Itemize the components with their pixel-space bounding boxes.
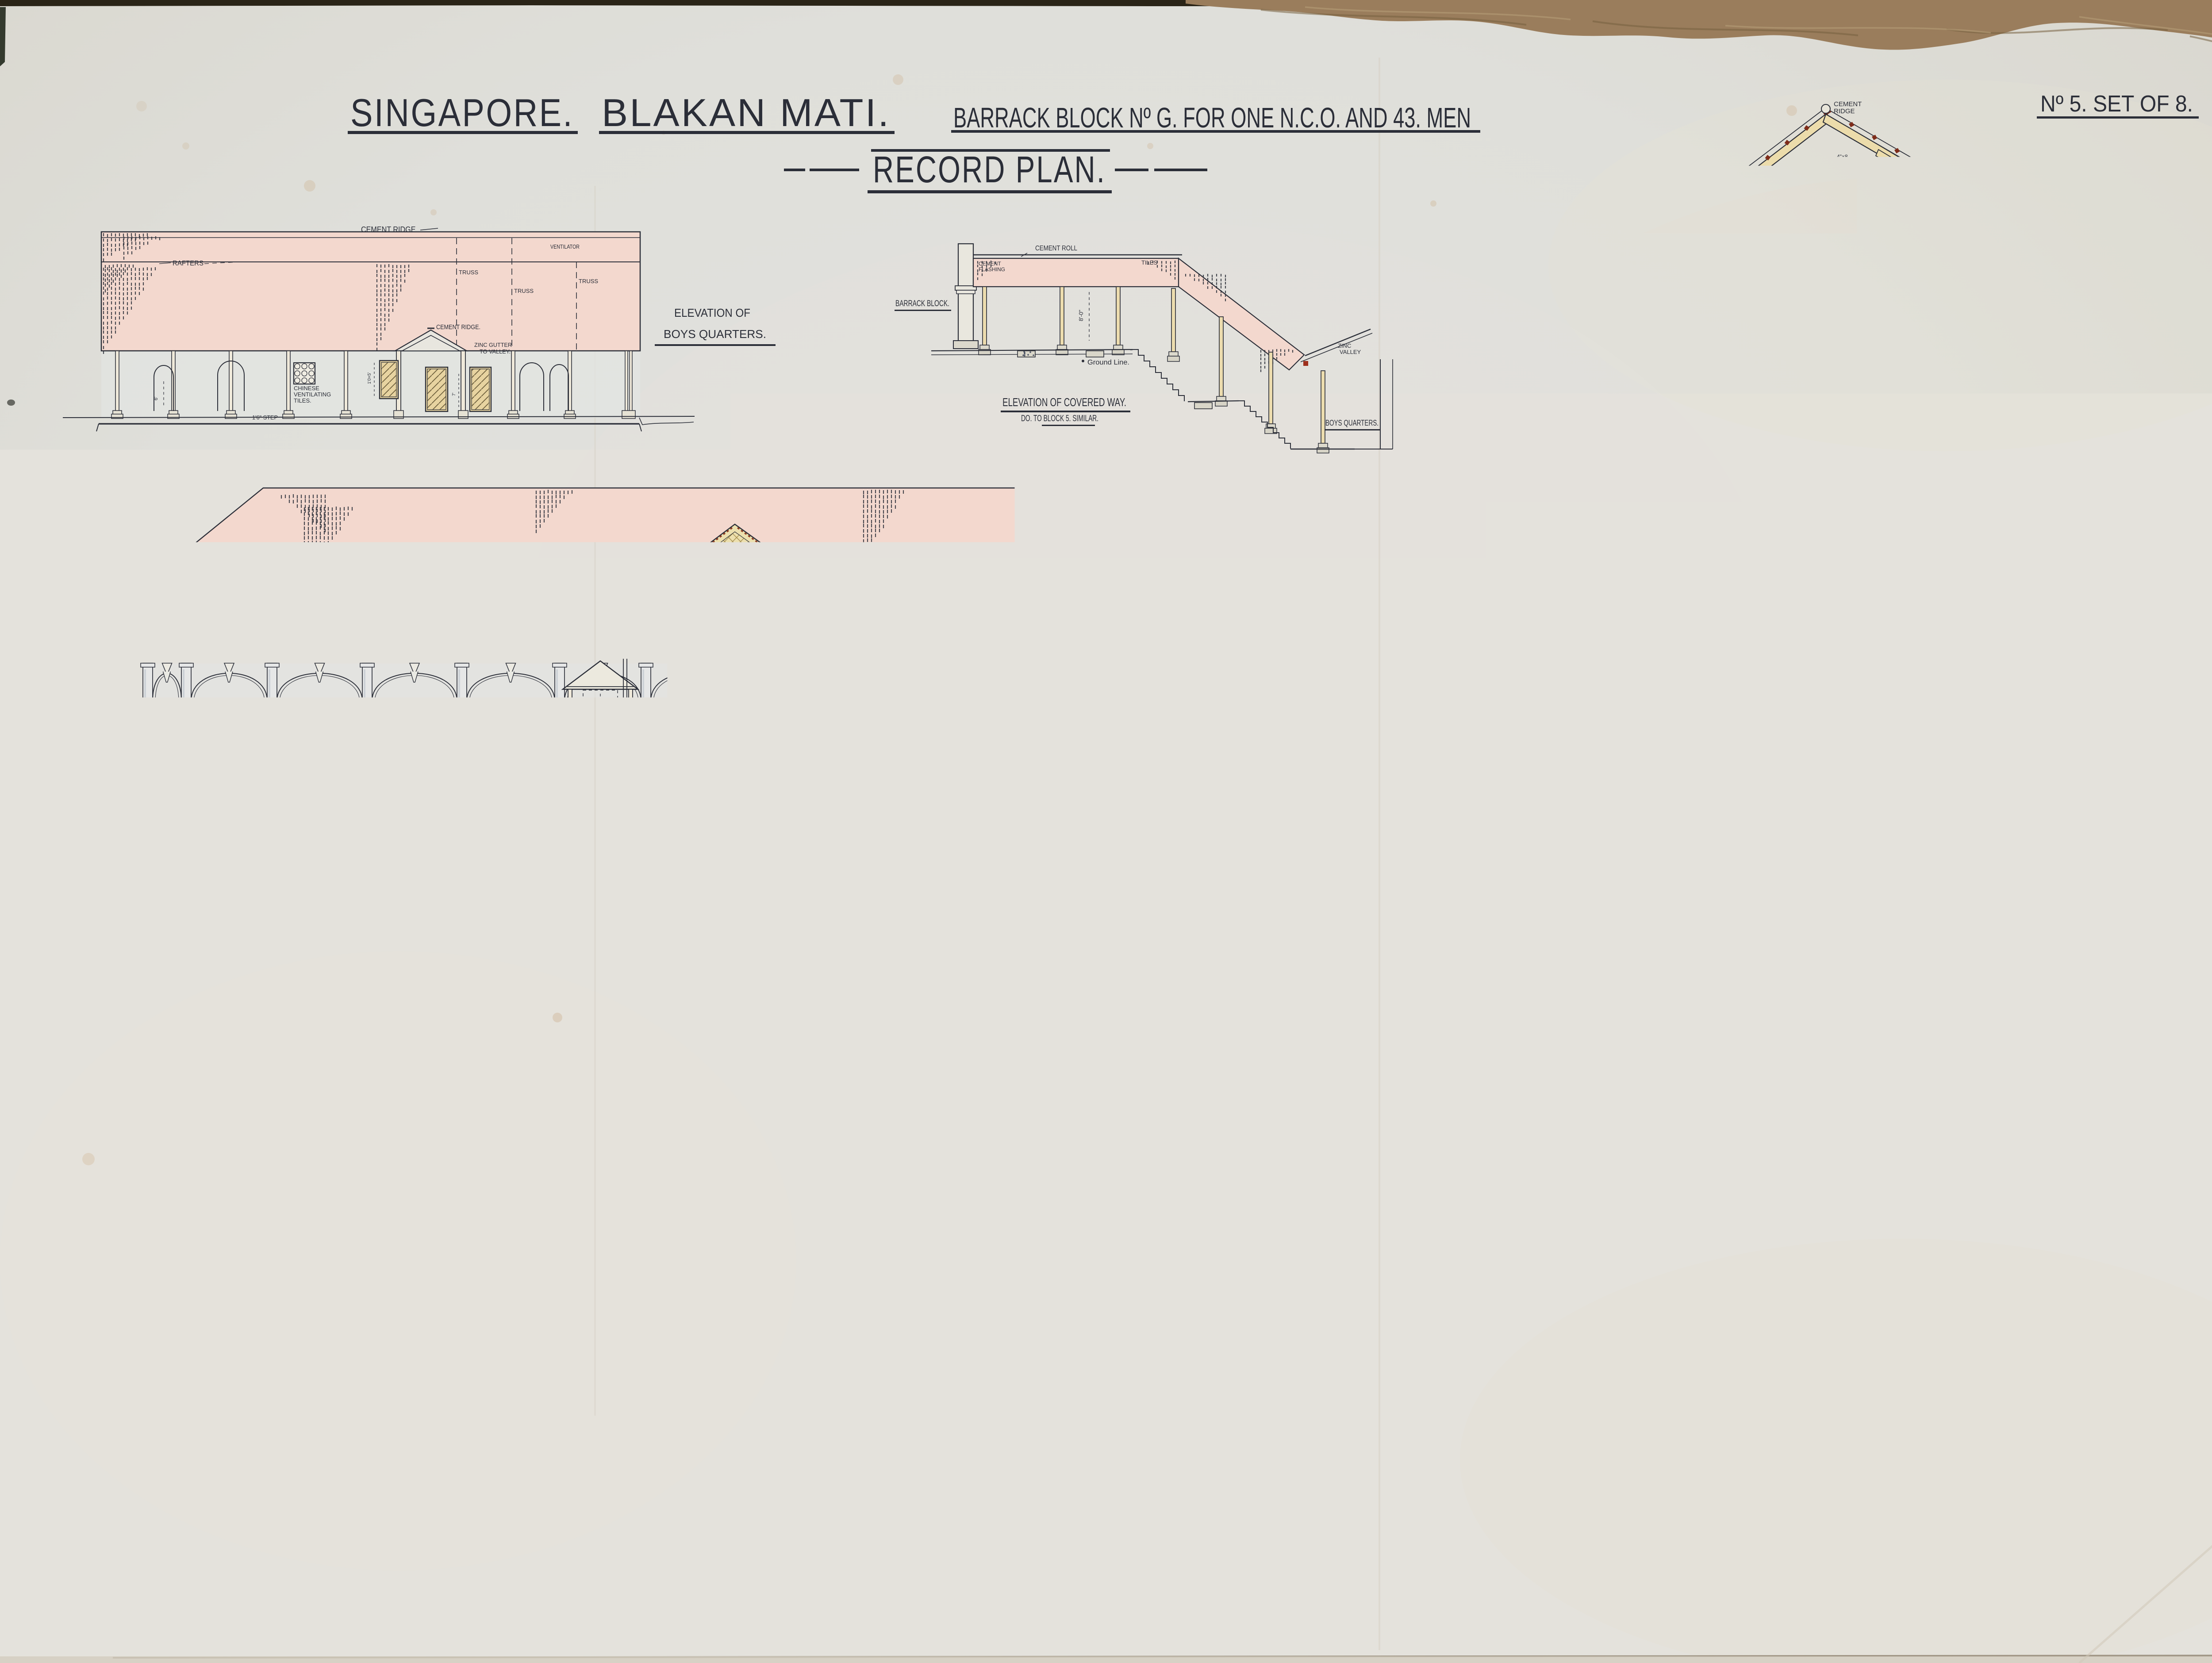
svg-text:20.: 20. (950, 1564, 962, 1574)
svg-text:6"×6": 6"×6" (1168, 331, 1181, 338)
svg-text:ELEVATION OF: ELEVATION OF (674, 306, 750, 319)
svg-text:RIDGE: RIDGE (1834, 108, 1855, 115)
svg-text:6: 6 (1503, 1322, 1506, 1329)
svg-text:12 Ins: 12 Ins (688, 1580, 708, 1587)
svg-text:4"×3" UPRIGHT.: 4"×3" UPRIGHT. (1793, 192, 1833, 199)
svg-text:5: 5 (754, 1561, 760, 1572)
svg-text:CORBEL.: CORBEL. (1616, 1014, 1639, 1020)
svg-text:ELEVATION OF COVERED WAY.: ELEVATION OF COVERED WAY. (1002, 396, 1126, 409)
svg-text:5"×8": 5"×8" (1594, 326, 1608, 332)
svg-text:10: 10 (717, 1563, 725, 1571)
svg-text:6" HARD FILLING.: 6" HARD FILLING. (1916, 1181, 1973, 1188)
svg-text:0: 0 (1659, 1306, 1664, 1315)
svg-text:LINE OF: LINE OF (1949, 758, 1971, 764)
svg-text:10×6: 10×6 (1647, 1010, 1659, 1016)
svg-text:LEVEL OF FLOOR. 58·69.: LEVEL OF FLOOR. 58·69. (1745, 463, 1820, 470)
svg-text:TRUSS: TRUSS (514, 288, 534, 294)
svg-text:°: ° (1509, 1319, 1512, 1326)
svg-text:WOOD POST.: WOOD POST. (1573, 418, 1610, 424)
svg-text:4½"×4½": 4½"×4½" (1573, 411, 1597, 418)
svg-text:STRAITS SETTLEMENTS.: STRAITS SETTLEMENTS. (2133, 1615, 2212, 1629)
svg-text:TRUSS: TRUSS (459, 269, 478, 276)
svg-text:6': 6' (154, 397, 159, 400)
svg-text:FLASHING: FLASHING (979, 266, 1005, 273)
svg-text:CORBEL.: CORBEL. (1813, 1024, 1834, 1029)
svg-text:⟵ 2'-3"⟶: ⟵ 2'-3"⟶ (2056, 1254, 2086, 1260)
svg-text:PURLINS: PURLINS (1953, 233, 1976, 239)
svg-text:CEMENT RIDGE.: CEMENT RIDGE. (436, 323, 480, 331)
svg-text:TILES: TILES (1141, 259, 1157, 266)
svg-text:9" BRICK.: 9" BRICK. (1691, 306, 1717, 313)
svg-text:FRONT ELEVATION (N.E.): FRONT ELEVATION (N.E.) (669, 1333, 826, 1350)
svg-text:VENTILATOR: VENTILATOR (550, 243, 580, 250)
svg-text:6" PORTLAND CEMENT CONCRETE.: 6" PORTLAND CEMENT CONCRETE. (1753, 473, 1859, 480)
svg-text:50.: 50. (1179, 1564, 1191, 1574)
svg-text:ARCH.: ARCH. (2089, 375, 2105, 381)
svg-text:TILES.: TILES. (294, 397, 311, 404)
svg-text:CEMENT: CEMENT (1796, 641, 1826, 649)
svg-text:6" P.C. CONCRETE.: 6" P.C. CONCRETE. (1606, 1169, 1659, 1175)
svg-text:6"×2" JOIST.: 6"×2" JOIST. (1586, 991, 1619, 998)
svg-text:WOOD POST.: WOOD POST. (1125, 311, 1159, 317)
svg-text:CEMENT DAMP COURSE: CEMENT DAMP COURSE (1886, 1144, 1974, 1151)
svg-text:CONCRETE: CONCRETE (1819, 1210, 1851, 1217)
svg-text:CEMENT RIDGE.: CEMENT RIDGE. (361, 225, 418, 234)
svg-text:GRANITE CORBEL.: GRANITE CORBEL. (1664, 1026, 1709, 1032)
svg-text:BRCK.: BRCK. (1520, 1031, 1535, 1037)
svg-text:SILT PIT.: SILT PIT. (995, 1318, 1018, 1325)
svg-text:CEMENTED: CEMENTED (1001, 351, 1028, 356)
svg-text:9": 9" (1677, 307, 1682, 314)
svg-text:5'-6": 5'-6" (2196, 1214, 2202, 1225)
svg-text:CEMENT COVER: CEMENT COVER (473, 1318, 520, 1325)
svg-text:Ground Line.: Ground Line. (1087, 359, 1129, 366)
svg-text:ZINC GUTTER: ZINC GUTTER (474, 342, 512, 348)
svg-text:WOOD GIRDER: WOOD GIRDER (1640, 1004, 1679, 1010)
svg-text:6"×8: 6"×8 (1924, 179, 1935, 185)
svg-text:SCALE 1. INCH = 8 FEET. (R.F.: SCALE 1. INCH = 8 FEET. (R.F. ¹⁄₉₆.) (1085, 1544, 1288, 1561)
svg-text:LEVEL 58·19.: LEVEL 58·19. (1529, 475, 1571, 482)
svg-text:100Ft: 100Ft (1561, 1564, 1584, 1574)
svg-text:CEMENT TILES.: CEMENT TILES. (1949, 764, 1992, 771)
svg-text:4'-0": 4'-0" (2074, 1214, 2081, 1225)
svg-text:BASE.: BASE. (1228, 415, 1243, 421)
svg-text:90.: 90. (1485, 1564, 1497, 1574)
svg-text:9": 9" (2076, 307, 2082, 314)
svg-text:CEMENT ROLL: CEMENT ROLL (1035, 245, 1077, 252)
svg-text:OF TILES ARE CEMENTED, THE RES: OF TILES ARE CEMENTED, THE REST LAID DRY… (202, 962, 406, 971)
svg-text:ZINC: ZINC (1338, 342, 1351, 349)
svg-text:LEVEL.: LEVEL. (2170, 464, 2190, 470)
svg-text:TO VALLEY.: TO VALLEY. (480, 348, 511, 355)
svg-text:4"×3" STRUT: 4"×3" STRUT (1871, 749, 1909, 756)
svg-text:15"×15": 15"×15" (1228, 409, 1246, 415)
svg-text:7'-3": 7'-3" (1929, 409, 1935, 420)
svg-text:BRICK: BRICK (1001, 346, 1016, 351)
svg-text:1¼" FLOORING.: 1¼" FLOORING. (1575, 1002, 1618, 1008)
svg-text:RAFTERS: RAFTERS (173, 260, 204, 267)
svg-text:6"×3" PRINCIPAL.: 6"×3" PRINCIPAL. (1710, 228, 1755, 235)
svg-text:⟵ 3'-3" ⟶: ⟵ 3'-3" ⟶ (1822, 1237, 1855, 1244)
svg-text:DO. TO BLOCK 5. SIMILAR.: DO. TO BLOCK 5. SIMILAR. (1021, 414, 1098, 423)
svg-text:BATTENS.: BATTENS. (1959, 709, 1991, 716)
svg-text:12.Ins.: 12.Ins. (1470, 1324, 1490, 1332)
svg-text:70.: 70. (1332, 1564, 1344, 1574)
svg-text:WOOD GIRDER: WOOD GIRDER (2057, 1006, 2100, 1013)
svg-text:TRUSS: TRUSS (579, 278, 598, 284)
svg-text:10"×6" WOOD GIRDER.: 10"×6" WOOD GIRDER. (1888, 1008, 1948, 1014)
svg-text:BLAKAN MATI.: BLAKAN MATI. (602, 91, 891, 134)
svg-text:5"×3": 5"×3" (1747, 711, 1762, 718)
svg-text:TO SILT PIT.: TO SILT PIT. (477, 1325, 510, 1331)
svg-text:GROUND.: GROUND. (2174, 485, 2205, 492)
svg-text:1½" WROT FLOORING.: 1½" WROT FLOORING. (1694, 991, 1747, 997)
svg-text:BRCK.: BRCK. (2144, 1031, 2159, 1037)
svg-text:CEMENT: CEMENT (979, 261, 1001, 267)
svg-text:CEMENT DAMP COURSE: CEMENT DAMP COURSE (2108, 457, 2181, 463)
svg-text:4"×8: 4"×8 (1837, 154, 1848, 160)
svg-text:CEMENT TILES.: CEMENT TILES. (1981, 686, 2028, 693)
svg-text:5" SAFE: 5" SAFE (1093, 291, 1113, 297)
svg-text:GRANITE CORBEL.: GRANITE CORBEL. (1917, 1026, 1962, 1032)
svg-text:⟵ 8'-1" ⟶: ⟵ 8'-1" ⟶ (1594, 459, 1627, 466)
svg-text:1" V JOINTED: 1" V JOINTED (1570, 901, 1609, 908)
svg-text:80.: 80. (1408, 1564, 1421, 1574)
svg-text:SECTION. A.B.: SECTION. A.B. (1795, 1259, 1908, 1277)
svg-text:ON EACH SIDE OF ROOF FOUR COUR: ON EACH SIDE OF ROOF FOUR COURSES (202, 948, 379, 957)
svg-text:2½"×1½" TILING: 2½"×1½" TILING (1946, 701, 1996, 709)
svg-text:GRANITE: GRANITE (1573, 471, 1597, 477)
svg-text:10×6: 10×6 (2065, 1012, 2078, 1019)
svg-text:April 1904.: April 1904. (241, 1644, 298, 1657)
svg-text:11'-8": 11'-8" (1705, 1082, 1713, 1097)
svg-text:10"×6" WOOD GIRDER.: 10"×6" WOOD GIRDER. (1688, 1008, 1748, 1014)
svg-text:CEMENT HIP.: CEMENT HIP. (1459, 769, 1501, 777)
svg-text:12'-3": 12'-3" (1753, 1073, 1760, 1089)
svg-text:BARRACK BLOCK.: BARRACK BLOCK. (895, 299, 949, 308)
svg-text:60.: 60. (1256, 1564, 1268, 1574)
svg-text:BOYS QUARTERS.: BOYS QUARTERS. (664, 327, 766, 341)
svg-text:⟵ 2'-6 ⟶: ⟵ 2'-6 ⟶ (1562, 523, 1591, 530)
svg-text:SINGAPORE.: SINGAPORE. (350, 91, 574, 134)
svg-text:11"×11": 11"×11" (1573, 465, 1591, 471)
svg-text:4'-0": 4'-0" (1962, 1210, 1969, 1221)
svg-text:W. Osborn Keats. T.C.D.: W. Osborn Keats. T.C.D. (152, 1629, 281, 1646)
svg-text:13'-6": 13'-6" (1657, 365, 1664, 381)
svg-text:National Archives of Singapore: National Archives of Singapore (254, 777, 2212, 890)
svg-text:⟵ 3'-3" ⟶: ⟵ 3'-3" ⟶ (2004, 1271, 2038, 1278)
svg-text:20: 20 (1958, 1304, 1969, 1315)
svg-text:CEMENT: CEMENT (1813, 1019, 1834, 1024)
svg-text:RIDGES.: RIDGES. (1800, 649, 1829, 657)
svg-text:Nº 5. SET OF 8.: Nº 5. SET OF 8. (2040, 91, 2193, 117)
svg-text:CORBEL.: CORBEL. (2030, 1018, 2053, 1024)
svg-text:GRANITE: GRANITE (1168, 337, 1191, 343)
svg-text:VENTILATING: VENTILATING (294, 391, 331, 398)
svg-text:1'-6"×2'-6": 1'-6"×2'-6" (1786, 1188, 1792, 1212)
svg-text:6" EAVES GUTTER.: 6" EAVES GUTTER. (1374, 902, 1438, 910)
svg-text:NOTE.: NOTE. (179, 919, 207, 929)
svg-text:10'-8: 10'-8 (591, 722, 598, 734)
svg-text:CEMENT: CEMENT (1834, 100, 1862, 108)
svg-text:8'-0": 8'-0" (1078, 310, 1084, 321)
svg-text:4"×5": 4"×5" (1844, 711, 1859, 718)
svg-text:SECTION OF BOYS QUARTERS ON LI: SECTION OF BOYS QUARTERS ON LINE C.D (1663, 533, 1948, 549)
svg-text:30.: 30. (1026, 1564, 1038, 1574)
svg-text:BOYS QUARTERS.: BOYS QUARTERS. (1325, 419, 1379, 427)
svg-text:1" V JOINTED BOARDING: 1" V JOINTED BOARDING (2053, 897, 2119, 904)
svg-text:1'-6": 1'-6" (1669, 522, 1679, 528)
svg-text:CORRECTED AND TRACED BY: CORRECTED AND TRACED BY (122, 1619, 248, 1628)
svg-text:PURLING.: PURLING. (1747, 718, 1776, 725)
svg-text:0.: 0. (797, 1564, 804, 1574)
svg-text:CHINESE: CHINESE (294, 385, 319, 392)
svg-text:BOARDING.: BOARDING. (1570, 908, 1605, 915)
svg-text:RECORD PLAN.: RECORD PLAN. (873, 149, 1106, 190)
svg-text:BARRACK BLOCK Nº G. FOR ONE N.: BARRACK BLOCK Nº G. FOR ONE N.C.O. AND 4… (953, 102, 1471, 134)
svg-text:9": 9" (1656, 488, 1661, 493)
svg-text:30: 30 (2108, 1304, 2118, 1315)
svg-text:CEMENT RIDGE: CEMENT RIDGE (2101, 718, 2173, 730)
svg-text:5"×5" WALL PLATE.: 5"×5" WALL PLATE. (1691, 257, 1740, 263)
svg-text:LEVEL O: LEVEL O (1773, 991, 1808, 1000)
svg-text:VALLEY: VALLEY (1340, 349, 1361, 355)
svg-text:FLOOR 82·92: FLOOR 82·92 (1863, 991, 1920, 1000)
svg-text:SCALE. 1. INCH = 4. FEET. (R.F: SCALE. 1. INCH = 4. FEET. (R.F. ¹⁄₄₈.) (1736, 1290, 1947, 1307)
svg-text:10.: 10. (873, 1564, 886, 1574)
svg-text:40.: 40. (1102, 1564, 1115, 1574)
svg-text:10: 10 (1809, 1304, 1819, 1315)
svg-text:5"×5": 5"×5" (2052, 257, 2066, 263)
svg-text:Lᵀ COLONEL. C.R.E.: Lᵀ COLONEL. C.R.E. (2053, 1594, 2195, 1609)
svg-text:6: 6 (707, 1578, 710, 1584)
svg-text:ROOF BOARDING: ROOF BOARDING (1785, 726, 1838, 734)
svg-text:6"×3" PRINCIPAL.: 6"×3" PRINCIPAL. (1703, 746, 1759, 754)
svg-text:¼" PURLING: ¼" PURLING (1624, 288, 1656, 294)
svg-text:7': 7' (452, 392, 457, 396)
svg-text:¼" DIAMETER: ¼" DIAMETER (1947, 226, 1982, 232)
svg-text:4½"×4½": 4½"×4½" (1125, 305, 1146, 311)
svg-text:5: 5 (1575, 1303, 1581, 1315)
svg-text:GRANITE.: GRANITE. (1836, 1027, 1861, 1033)
svg-text:1'6" STEP: 1'6" STEP (252, 414, 278, 421)
svg-text:7·10·04: 7·10·04 (2074, 1621, 2126, 1634)
svg-text:KING POST.: KING POST. (1844, 718, 1879, 725)
svg-text:9": 9" (2062, 488, 2067, 493)
svg-text:6×5: 6×5 (1925, 742, 1935, 749)
svg-text:1'-6": 1'-6" (2069, 522, 2079, 528)
svg-text:4"×3" COLLAR: 4"×3" COLLAR (1824, 210, 1862, 216)
svg-text:LINE OF: LINE OF (1981, 679, 2005, 686)
svg-text:TO HIP.: TO HIP. (1793, 734, 1814, 741)
svg-text:1'0×5': 1'0×5' (367, 373, 372, 384)
